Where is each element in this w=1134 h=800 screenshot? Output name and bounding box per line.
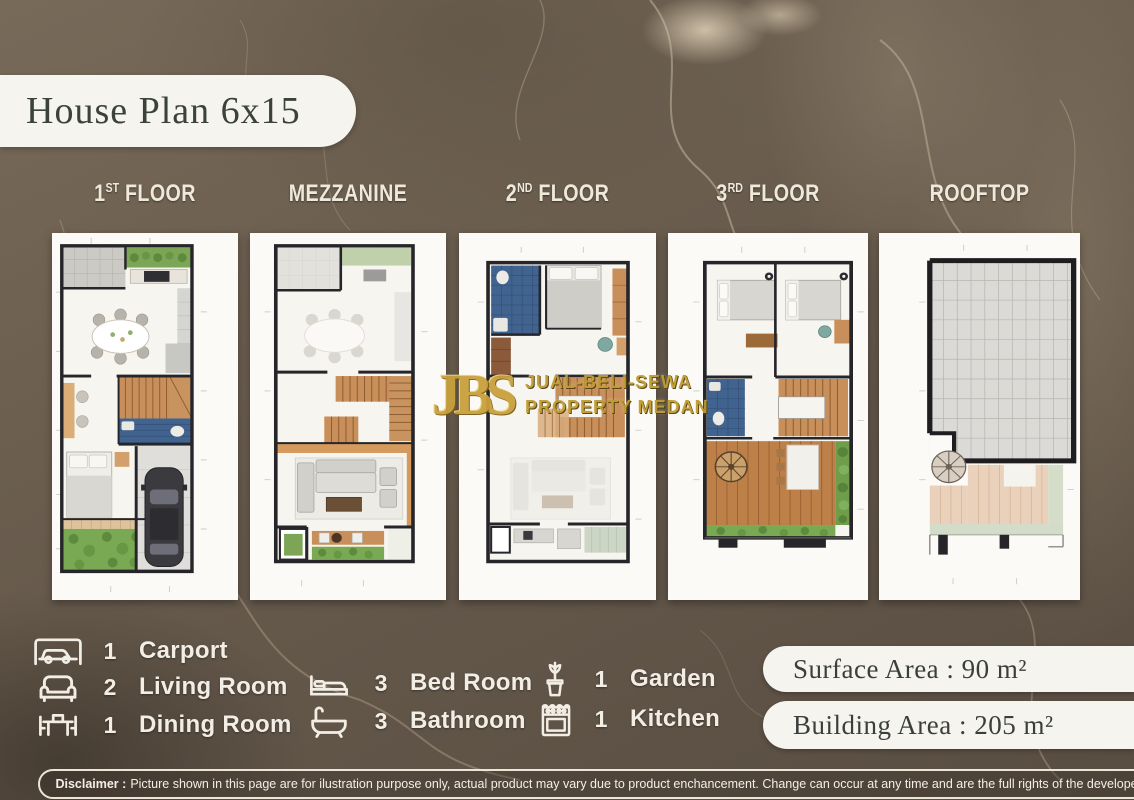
house-plan-brochure: House Plan 6x15 1ST FLOOR MEZZANINE 2ND … — [0, 0, 1134, 800]
floor-plan-rooftop — [879, 233, 1080, 600]
watermark-logo: JBS — [432, 366, 511, 424]
plant-icon — [540, 660, 584, 698]
title-pill: House Plan 6x15 — [0, 75, 356, 147]
building-area-text: Building Area : 205 m² — [763, 710, 1054, 741]
bed-icon — [304, 667, 364, 699]
disclaimer-bar: Disclaimer : Picture shown in this page … — [38, 769, 1134, 799]
watermark-line2: PROPERTY MEDAN — [525, 397, 709, 418]
floor-label-mezzanine: MEZZANINE — [268, 180, 429, 208]
legend-row-garden: 1 Garden — [540, 662, 716, 696]
legend-row-dining-room: 1 Dining Room — [33, 708, 292, 742]
disclaimer-label: Disclaimer : — [55, 777, 126, 791]
watermark: JBS JUAL-BELI-SEWA PROPERTY MEDAN — [432, 366, 709, 424]
car-icon — [33, 635, 93, 667]
floor-plan-mezzanine — [250, 233, 446, 600]
floor-label-1st: 1ST FLOOR — [69, 180, 222, 208]
bathtub-icon — [304, 703, 364, 739]
dining-table-icon — [33, 709, 93, 741]
surface-area-pill: Surface Area : 90 m² — [763, 646, 1134, 692]
disclaimer-text: Picture shown in this page are for ilust… — [130, 777, 1134, 791]
floor-label-3rd: 3RD FLOOR — [686, 180, 850, 208]
building-area-pill: Building Area : 205 m² — [763, 701, 1134, 749]
watermark-line1: JUAL-BELI-SEWA — [525, 372, 709, 393]
floor-plan-1st-floor — [52, 233, 238, 600]
sofa-icon — [33, 670, 93, 704]
legend-row-carport: 1 Carport — [33, 634, 228, 668]
legend-row-bed-room: 3 Bed Room — [304, 666, 532, 700]
legend-row-bathroom: 3 Bathroom — [304, 704, 526, 738]
page-title: House Plan 6x15 — [0, 89, 301, 133]
stove-icon — [540, 700, 584, 738]
legend-row-kitchen: 1 Kitchen — [540, 702, 720, 736]
legend-row-living-room: 2 Living Room — [33, 670, 288, 704]
floor-label-rooftop: ROOFTOP — [897, 180, 1062, 208]
surface-area-text: Surface Area : 90 m² — [763, 654, 1027, 685]
floor-label-2nd: 2ND FLOOR — [477, 180, 639, 208]
